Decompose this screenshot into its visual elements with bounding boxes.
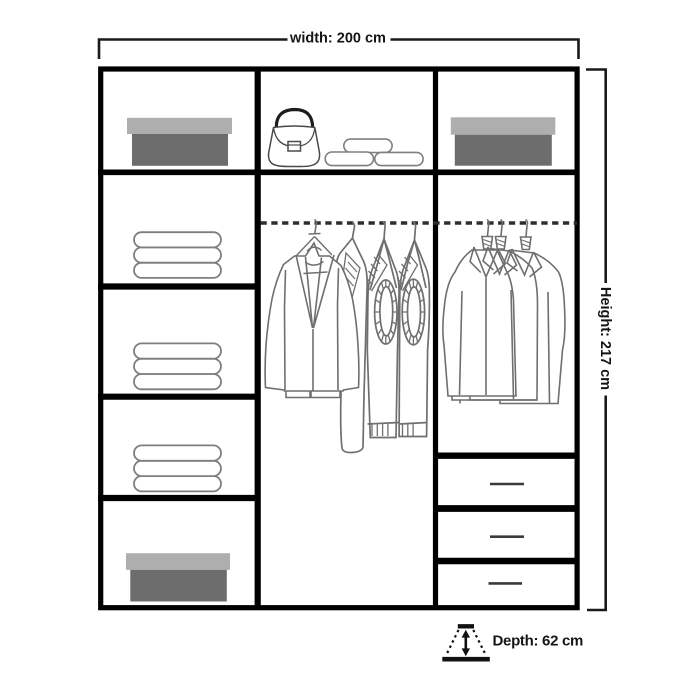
svg-text:Depth: 62 cm: Depth: 62 cm xyxy=(493,633,584,650)
svg-text:width: 200 cm: width: 200 cm xyxy=(289,31,386,47)
svg-text:Height: 217 cm: Height: 217 cm xyxy=(597,287,613,390)
